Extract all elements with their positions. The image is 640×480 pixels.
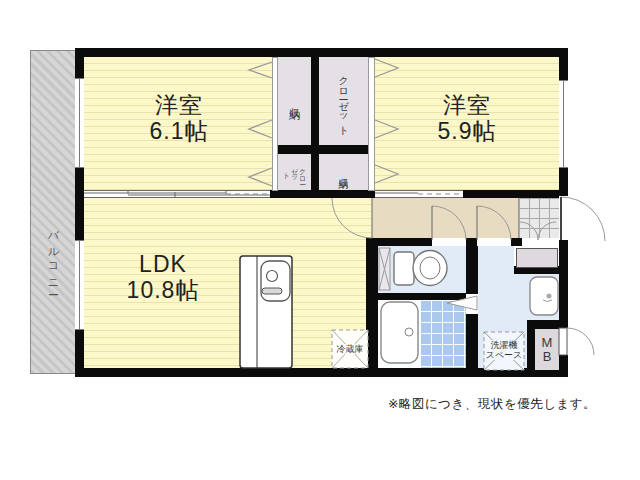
washer-line1: 洗濯機: [490, 340, 517, 350]
pipe-space-icon: [379, 248, 390, 290]
meter-box-label: M B: [542, 336, 553, 364]
ldk-name: LDK: [139, 251, 187, 277]
bath-fold-door-icon: [447, 296, 477, 310]
bathtub-icon: [381, 302, 418, 363]
refrigerator-label: 冷蔵庫: [336, 344, 365, 354]
bedroom2-size: 5.9帖: [438, 118, 497, 144]
balcony-label: バルコニー: [46, 223, 61, 293]
washbasin-icon: [530, 277, 558, 315]
bedroom1-label: 洋室 6.1帖: [150, 92, 209, 144]
ldk-door-icon: [332, 198, 372, 238]
bedroom1-size: 6.1帖: [150, 118, 209, 144]
closet-b1-top-label: 収納: [287, 99, 302, 103]
genkan-cabinet-doors-icon: [520, 222, 556, 240]
closet-b1-bottom-label: クローゼット: [282, 159, 306, 185]
sliding-door-icon: [84, 190, 463, 198]
bedroom2-label: 洋室 5.9帖: [438, 92, 497, 144]
mb-door-leaf-icon: [559, 328, 567, 355]
washroom-door-icon: [477, 206, 511, 240]
mb-line2: B: [543, 349, 552, 364]
disclaimer-note: ※略図につき、現状を優先します。: [388, 396, 596, 413]
entrance-door-icon: [561, 197, 605, 241]
mb-line1: M: [542, 335, 553, 350]
bedroom2-name: 洋室: [443, 92, 491, 118]
closet-fold-icons: [249, 59, 398, 186]
closet-b2-bottom-label: 収納: [336, 170, 350, 174]
washer-space-label: 洗濯機 スペース: [486, 340, 523, 360]
floor-plan: 洋室 6.1帖 洋室 5.9帖 LDK 10.8帖 収納 クローゼット クローゼ…: [0, 0, 640, 480]
mb-door-icon: [567, 328, 594, 355]
ldk-size: 10.8帖: [127, 277, 200, 303]
closet-b2-top-label: クローゼット: [336, 68, 350, 131]
bedroom1-name: 洋室: [155, 92, 203, 118]
ldk-label: LDK 10.8帖: [127, 251, 200, 303]
kitchen-sink-icon: [261, 261, 290, 301]
toilet-icon: [394, 251, 447, 286]
toilet-door-icon: [432, 206, 466, 240]
washer-line2: スペース: [486, 350, 523, 360]
kitchen-counter-icon: [240, 256, 292, 368]
